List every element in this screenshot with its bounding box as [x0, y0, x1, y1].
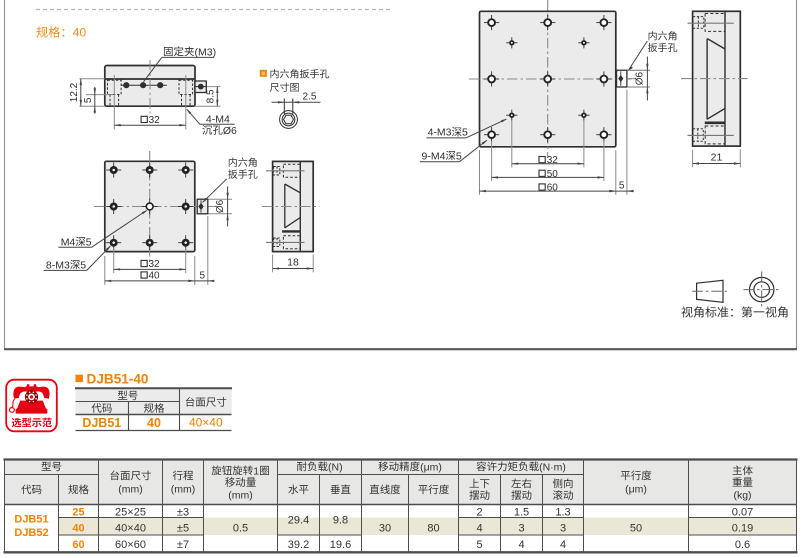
svg-text:5: 5: [86, 236, 92, 248]
svg-text:40×40: 40×40: [189, 416, 223, 430]
svg-text:60×60: 60×60: [115, 539, 146, 551]
svg-text:Ø6: Ø6: [215, 199, 226, 213]
svg-text:18: 18: [287, 257, 299, 269]
svg-text:3: 3: [518, 522, 524, 534]
svg-text:9-M4: 9-M4: [422, 150, 446, 162]
svg-text:40: 40: [72, 522, 84, 534]
svg-text:(mm): (mm): [118, 484, 143, 496]
svg-text:12.2: 12.2: [69, 82, 80, 102]
svg-text:25: 25: [72, 507, 84, 519]
svg-text:40: 40: [73, 26, 87, 40]
svg-text:4-M3: 4-M3: [428, 127, 452, 139]
svg-text:29.4: 29.4: [288, 515, 309, 527]
svg-text:4: 4: [560, 539, 566, 551]
svg-text:40: 40: [147, 416, 161, 430]
svg-text:40: 40: [149, 271, 161, 282]
svg-text:±7: ±7: [177, 539, 189, 551]
svg-text:25×25: 25×25: [115, 507, 146, 519]
svg-text:DJB51: DJB51: [14, 514, 48, 526]
svg-text:50: 50: [630, 522, 642, 534]
svg-text:19.6: 19.6: [330, 539, 351, 551]
svg-text:4-M4: 4-M4: [206, 113, 230, 125]
svg-text:32: 32: [149, 115, 161, 126]
svg-text:5: 5: [462, 127, 468, 139]
svg-text:(mm): (mm): [171, 484, 196, 496]
svg-text:(M3): (M3): [195, 46, 217, 58]
svg-text:40×40: 40×40: [115, 522, 146, 534]
svg-text:(N·m): (N·m): [539, 461, 566, 473]
svg-text:±3: ±3: [177, 507, 189, 519]
svg-text:(kg): (kg): [733, 490, 751, 502]
svg-text:5: 5: [200, 270, 206, 281]
svg-text:0.07: 0.07: [732, 507, 753, 519]
svg-text:8.5: 8.5: [206, 89, 217, 103]
svg-text:DJB51: DJB51: [82, 416, 121, 430]
svg-text:1.3: 1.3: [555, 507, 570, 519]
svg-text:Ø6: Ø6: [635, 71, 646, 85]
svg-text:5: 5: [619, 181, 625, 192]
svg-text:3: 3: [560, 522, 566, 534]
svg-text:5: 5: [83, 97, 94, 103]
svg-text:1: 1: [253, 465, 259, 477]
svg-text:5: 5: [80, 259, 86, 271]
svg-text:0.5: 0.5: [233, 522, 248, 534]
svg-text:4: 4: [476, 522, 482, 534]
svg-text:30: 30: [379, 522, 391, 534]
svg-text:(mm): (mm): [228, 490, 253, 502]
svg-text:DJB52: DJB52: [14, 527, 48, 539]
svg-text:M4: M4: [61, 236, 76, 248]
svg-text:32: 32: [149, 259, 161, 270]
svg-text:80: 80: [427, 522, 439, 534]
svg-text:8-M3: 8-M3: [46, 259, 70, 271]
svg-text:32: 32: [547, 155, 559, 166]
svg-text:(μm): (μm): [420, 461, 442, 473]
svg-text:Ø6: Ø6: [223, 125, 237, 137]
svg-text:50: 50: [547, 169, 559, 180]
svg-text:9.8: 9.8: [333, 515, 348, 527]
svg-text:0.6: 0.6: [735, 539, 750, 551]
svg-text:4: 4: [518, 539, 524, 551]
svg-text:60: 60: [547, 183, 559, 194]
svg-text:±5: ±5: [177, 522, 189, 534]
svg-text:0.19: 0.19: [732, 522, 753, 534]
svg-text:2: 2: [476, 507, 482, 519]
svg-text:39.2: 39.2: [288, 539, 309, 551]
svg-text:5: 5: [456, 150, 462, 162]
svg-text:60: 60: [72, 539, 84, 551]
svg-text:1.5: 1.5: [514, 507, 529, 519]
svg-text:2.5: 2.5: [303, 92, 317, 103]
svg-text:(μm): (μm): [625, 484, 647, 496]
svg-text:5: 5: [476, 539, 482, 551]
svg-text:DJB51-40: DJB51-40: [87, 372, 149, 387]
svg-text:(N): (N): [328, 461, 343, 473]
svg-text:21: 21: [711, 152, 723, 164]
